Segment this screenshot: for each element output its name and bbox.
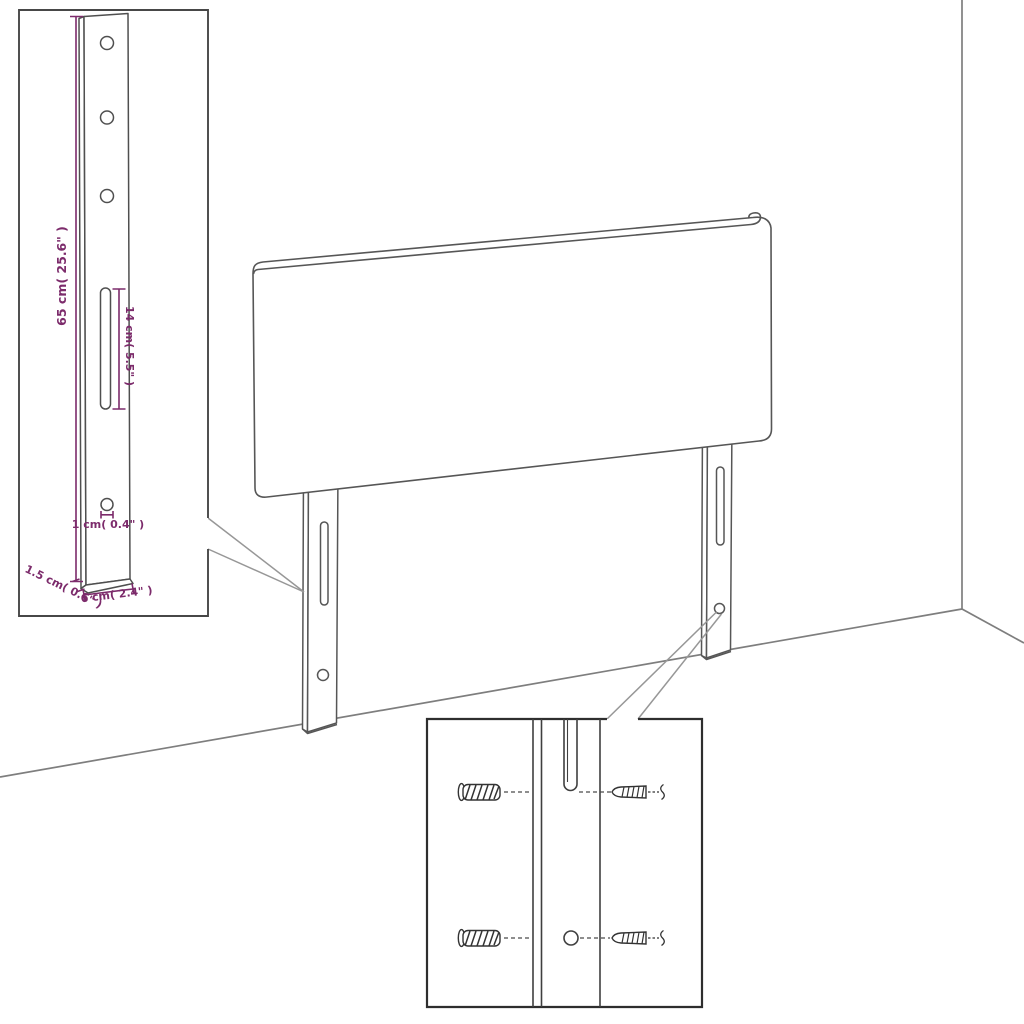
panel-outline xyxy=(253,217,772,497)
callout-line-left xyxy=(607,612,717,719)
callout-line-right xyxy=(638,614,722,719)
headboard-dimension-diagram: 65 cm( 25.6" ) 14 cm( 5.5" ) 1 cm( 0.4" … xyxy=(0,0,1024,1024)
bracket-hole-1 xyxy=(101,37,114,50)
leg-left-slot xyxy=(321,522,329,605)
bracket-hole-3 xyxy=(101,190,114,203)
label-hole-diameter: 1 cm( 0.4" ) xyxy=(72,518,144,531)
label-slot-length: 14 cm( 5.5" ) xyxy=(123,306,136,386)
bracket-slot xyxy=(101,288,111,409)
wall-plug-top-icon xyxy=(458,784,500,801)
bracket-inset: 65 cm( 25.6" ) 14 cm( 5.5" ) 1 cm( 0.4" … xyxy=(19,10,208,616)
callout-wedge-bracket xyxy=(208,518,304,592)
hardware-inset xyxy=(427,719,702,1007)
floor-line-right xyxy=(962,609,1024,643)
headboard-panel xyxy=(253,213,772,497)
bracket-hole-2 xyxy=(101,111,114,124)
wall-plug-bottom-icon xyxy=(458,930,500,947)
leg-right-slot xyxy=(717,467,725,545)
leg-left-hole xyxy=(318,670,329,681)
headboard-leg-left xyxy=(303,466,339,734)
label-bracket-height: 65 cm( 25.6" ) xyxy=(54,226,69,326)
bracket-small-hole xyxy=(101,499,113,511)
diagram-stage: 65 cm( 25.6" ) 14 cm( 5.5" ) 1 cm( 0.4" … xyxy=(0,0,1024,1024)
